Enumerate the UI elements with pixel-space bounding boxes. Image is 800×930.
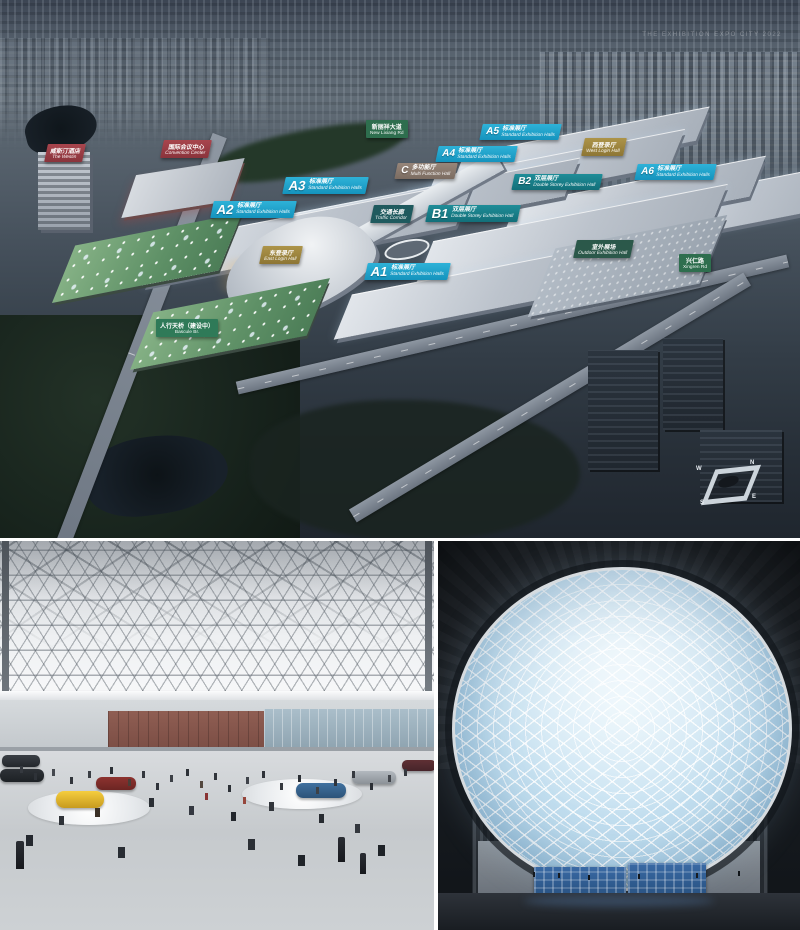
hall-interior-photo xyxy=(0,541,434,930)
crowd-figures xyxy=(0,541,3,548)
hotel-tower xyxy=(38,152,90,230)
hall-letter-a2: A2 xyxy=(216,203,235,216)
compass-s: S xyxy=(700,500,704,506)
atrium-visitors xyxy=(438,541,440,546)
exhibit-board-right xyxy=(628,863,706,897)
floor-reflection-glow xyxy=(524,895,714,907)
label-east-login-hall: 东登录厅East Login Hall xyxy=(259,246,303,264)
roof-main-trusses xyxy=(0,541,434,651)
hall-label-a4: A4 标准展厅Standard Exhibition Halls xyxy=(435,146,518,162)
hall-en-c: Multi Function Hall xyxy=(410,172,451,178)
compass-e: E xyxy=(752,494,756,500)
hall-letter-b1: B1 xyxy=(431,207,450,220)
hall-zh-a4: 标准展厅 xyxy=(458,148,513,155)
hall-text-a6: 标准展厅Standard Exhibition Halls xyxy=(655,166,711,178)
westin-zh: 威斯汀酒店 xyxy=(50,146,82,155)
hall-text-a4: 标准展厅Standard Exhibition Halls xyxy=(456,148,512,160)
hall-zh-a6: 标准展厅 xyxy=(657,166,712,173)
hall-text-a3: 标准展厅Standard Exhibition Halls xyxy=(307,179,363,191)
car-blue xyxy=(296,783,346,798)
label-traffic-corridor: 交通长廊Traffic Corridor xyxy=(370,205,414,223)
compass-eye xyxy=(716,475,741,489)
east-login-en: East Login Hall xyxy=(264,257,297,262)
structural-column-right xyxy=(425,541,432,716)
hall-label-a1: A1 标准展厅Standard Exhibition Halls xyxy=(364,263,451,280)
watermark-text: THE EXHIBITION EXPO CITY 2022 xyxy=(642,32,782,38)
hall-zh-c: 多功能厅 xyxy=(411,165,452,172)
roof-fascia-beam xyxy=(0,691,434,700)
bridge-zh: 人行天桥（建设中） xyxy=(160,321,214,330)
compass-icon: N W E S xyxy=(696,460,764,510)
hall-label-a6: A6 标准展厅Standard Exhibition Halls xyxy=(634,164,717,180)
foreground-visitor-left xyxy=(16,841,24,869)
hall-text-c: 多功能厅Multi Function Hall xyxy=(410,165,452,177)
car-silver xyxy=(352,771,396,784)
hall-label-c: C 多功能厅Multi Function Hall xyxy=(394,163,457,179)
label-westin-hotel: 威斯汀酒店The Westin xyxy=(44,144,86,162)
label-convention-center: 国际会议中心Convention Center xyxy=(160,140,212,158)
label-pedestrian-bridge: 人行天桥（建设中）Bascule Br. xyxy=(156,319,218,337)
atrium-dome-photo xyxy=(438,541,800,930)
hall-text-b2: 双层展厅Double Storey Exhibition Hall xyxy=(532,176,597,188)
hall-letter-a5: A5 xyxy=(485,127,500,137)
dark-building-1 xyxy=(588,350,658,470)
compass-w: W xyxy=(696,466,702,472)
convention-zh: 国际会议中心 xyxy=(168,142,206,151)
hall-letter-a6: A6 xyxy=(640,167,655,177)
car-red xyxy=(96,777,136,790)
hall-en-a6: Standard Exhibition Halls xyxy=(655,173,710,179)
hall-text-a2: 标准展厅Standard Exhibition Halls xyxy=(235,203,291,215)
hall-letter-b2: B2 xyxy=(517,177,532,187)
hall-en-a3: Standard Exhibition Halls xyxy=(307,186,362,192)
car-maroon xyxy=(402,760,434,771)
label-road-east: 兴仁路Xingren Rd xyxy=(679,254,711,272)
hall-en-a5: Standard Exhibition Halls xyxy=(500,133,555,139)
label-road-north: 新丽祥大道New Lixiang Rd xyxy=(366,120,408,138)
road-north-zh: 新丽祥大道 xyxy=(372,122,402,131)
hall-label-a3: A3 标准展厅Standard Exhibition Halls xyxy=(282,177,369,194)
hall-label-b2: B2 双层展厅Double Storey Exhibition Hall xyxy=(511,174,602,190)
foreground-visitor-far-right xyxy=(360,853,366,874)
dark-building-2 xyxy=(663,338,723,430)
road-north-en: New Lixiang Rd xyxy=(370,131,404,136)
road-east-zh: 兴仁路 xyxy=(686,256,704,265)
hall-letter-a3: A3 xyxy=(288,179,307,192)
label-west-login-hall: 西登录厅West Login Hall xyxy=(581,138,626,156)
hall-letter-a4: A4 xyxy=(441,149,456,159)
east-login-zh: 东登录厅 xyxy=(269,248,295,257)
compass-n: N xyxy=(750,460,754,466)
convention-en: Convention Center xyxy=(165,151,206,156)
hall-en-b2: Double Storey Exhibition Hall xyxy=(532,183,595,189)
road-east-en: Xingren Rd xyxy=(683,265,707,270)
bridge-en: Bascule Br. xyxy=(175,330,199,335)
hall-text-a5: 标准展厅Standard Exhibition Halls xyxy=(500,126,556,138)
hall-text-b1: 双层展厅Double Storey Exhibition Hall xyxy=(450,207,515,219)
outdoor-en: Outdoor Exhibition Hall xyxy=(578,251,628,256)
west-login-en: West Login Hall xyxy=(586,149,621,154)
car-dark-1 xyxy=(2,755,40,767)
aerial-rendering-panel: A1 标准展厅Standard Exhibition Halls A2 标准展厅… xyxy=(0,0,800,538)
hall-letter-a1: A1 xyxy=(370,265,389,278)
render-collage: A1 标准展厅Standard Exhibition Halls A2 标准展厅… xyxy=(0,0,800,930)
hall-en-a1: Standard Exhibition Halls xyxy=(389,272,444,278)
hall-letter-c: C xyxy=(400,166,409,176)
hall-text-a1: 标准展厅Standard Exhibition Halls xyxy=(389,265,445,277)
foreground-visitor-right xyxy=(338,837,345,862)
corridor-zh: 交通长廊 xyxy=(379,207,405,216)
westin-en: The Westin xyxy=(51,155,76,160)
outdoor-zh: 室外展场 xyxy=(591,242,617,251)
car-dark-2 xyxy=(0,769,44,782)
hall-label-a2: A2 标准展厅Standard Exhibition Halls xyxy=(210,201,297,218)
hall-zh-a5: 标准展厅 xyxy=(502,126,557,133)
corridor-en: Traffic Corridor xyxy=(375,216,408,221)
west-login-zh: 西登录厅 xyxy=(591,140,617,149)
hall-en-a4: Standard Exhibition Halls xyxy=(456,155,511,161)
back-wall-glass-section xyxy=(264,709,434,748)
hall-en-a2: Standard Exhibition Halls xyxy=(235,210,290,216)
hall-label-a5: A5 标准展厅Standard Exhibition Halls xyxy=(479,124,562,140)
label-outdoor-exhibition: 室外展场Outdoor Exhibition Hall xyxy=(573,240,634,258)
glass-dome-skylight xyxy=(452,567,792,891)
back-wall-red-section xyxy=(108,711,264,748)
hall-zh-b2: 双层展厅 xyxy=(534,176,598,183)
hall-en-b1: Double Storey Exhibition Hall xyxy=(450,214,513,220)
helipad-ellipse xyxy=(382,235,431,264)
hall-label-b1: B1 双层展厅Double Storey Exhibition Hall xyxy=(425,205,520,222)
car-yellow xyxy=(56,791,104,808)
